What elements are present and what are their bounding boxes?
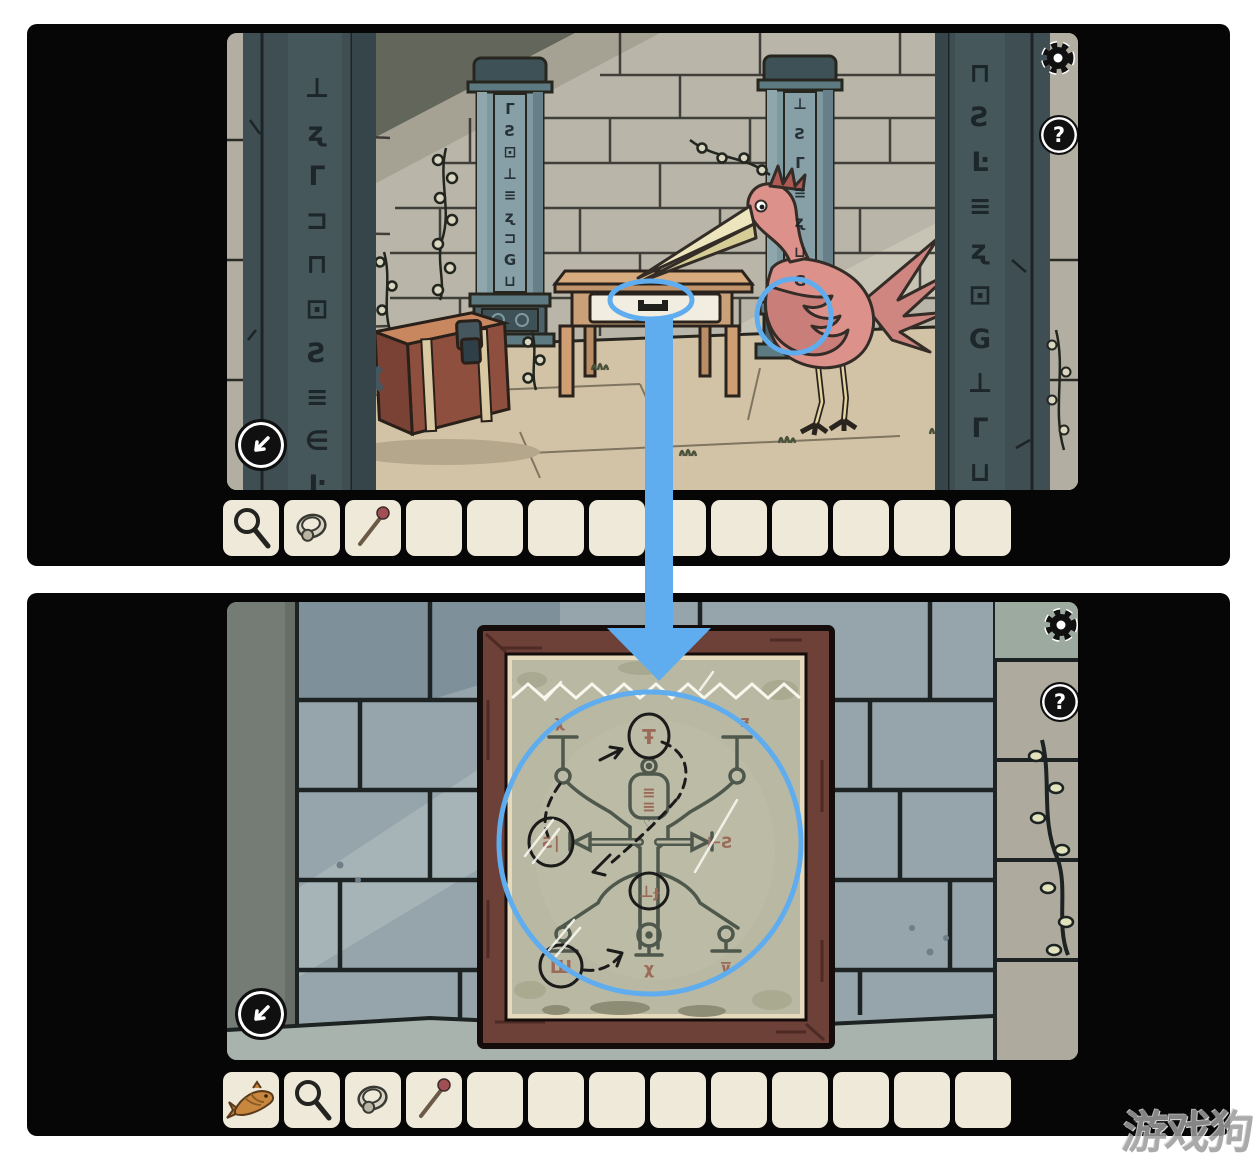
inventory-slot-match[interactable] xyxy=(345,500,401,556)
picture-wall-illustration: χ ƶ Ŧ ≡ ≡ ♡ Ƨ| ⊢Ƨ ⊥ɟ Ш χ ⊽ xyxy=(227,602,1078,1060)
inventory-slot-empty[interactable] xyxy=(467,500,523,556)
game-scene-picture[interactable]: χ ƶ Ŧ ≡ ≡ ♡ Ƨ| ⊢Ƨ ⊥ɟ Ш χ ⊽ xyxy=(227,602,1078,1060)
help-button[interactable]: ? xyxy=(1040,682,1078,722)
gear-icon xyxy=(1037,37,1078,79)
inventory-slot-empty[interactable] xyxy=(833,500,889,556)
ring-icon xyxy=(284,500,340,556)
inventory-slot-empty[interactable] xyxy=(711,1072,767,1128)
inventory-slot-empty[interactable] xyxy=(406,500,462,556)
svg-text:≡: ≡ xyxy=(642,797,655,816)
inventory-slot-empty[interactable] xyxy=(589,1072,645,1128)
inventory-slot-empty[interactable] xyxy=(894,1072,950,1128)
inventory-slot-empty[interactable] xyxy=(467,1072,523,1128)
settings-button[interactable] xyxy=(1040,604,1078,646)
inventory-slot-empty[interactable] xyxy=(955,1072,1011,1128)
inventory-slot-magnifier[interactable] xyxy=(223,500,279,556)
gear-icon xyxy=(1040,604,1078,646)
inventory-slot-empty[interactable] xyxy=(772,500,828,556)
match-icon xyxy=(345,500,401,556)
svg-text:χ: χ xyxy=(555,712,565,731)
arrow-down-left-icon xyxy=(249,433,273,457)
magnifying-glass-icon xyxy=(223,500,279,556)
wooden-chest[interactable] xyxy=(372,311,510,436)
screenshot-panel-top: ⊥ʐΓ⊐⊓⊡Ƨ≡∈Ŀ ⊓ƧĿ≡ʐ⊡G⊥Γ⊔ ΓƧ⊡⊥≡ʐ⊐G⊔ ⊥ƧΓ≡ʐ⊔G xyxy=(27,24,1230,566)
inventory-slot-ring[interactable] xyxy=(345,1072,401,1128)
svg-text:Ŧ: Ŧ xyxy=(642,725,656,749)
inventory-bar xyxy=(223,500,1011,556)
inventory-slot-empty[interactable] xyxy=(772,1072,828,1128)
walkthrough-page: ⊥ʐΓ⊐⊓⊡Ƨ≡∈Ŀ ⊓ƧĿ≡ʐ⊡G⊥Γ⊔ ΓƧ⊡⊥≡ʐ⊐G⊔ ⊥ƧΓ≡ʐ⊔G xyxy=(0,0,1256,1161)
game-scene-room[interactable]: ⊥ʐΓ⊐⊓⊡Ƨ≡∈Ŀ ⊓ƧĿ≡ʐ⊡G⊥Γ⊔ ΓƧ⊡⊥≡ʐ⊐G⊔ ⊥ƧΓ≡ʐ⊔G xyxy=(227,33,1078,490)
magnifying-glass-icon xyxy=(284,1072,340,1128)
inventory-slot-empty[interactable] xyxy=(833,1072,889,1128)
inventory-slot-empty[interactable] xyxy=(650,500,706,556)
inventory-bar xyxy=(223,1072,1011,1128)
back-button[interactable] xyxy=(235,419,287,471)
room-illustration xyxy=(227,33,1078,490)
ring-icon xyxy=(345,1072,401,1128)
arrow-down-left-icon xyxy=(249,1002,273,1026)
inventory-slot-empty[interactable] xyxy=(955,500,1011,556)
svg-text:⊥ɟ: ⊥ɟ xyxy=(639,882,660,901)
svg-text:χ: χ xyxy=(644,959,654,978)
help-label: ? xyxy=(1053,123,1065,147)
svg-text:ƶ: ƶ xyxy=(740,712,749,731)
help-label: ? xyxy=(1054,690,1066,714)
inventory-slot-empty[interactable] xyxy=(528,500,584,556)
svg-text:Ш: Ш xyxy=(550,957,572,978)
inventory-slot-empty[interactable] xyxy=(650,1072,706,1128)
inventory-slot-empty[interactable] xyxy=(894,500,950,556)
inventory-slot-fish[interactable] xyxy=(223,1072,279,1128)
inventory-slot-empty[interactable] xyxy=(528,1072,584,1128)
match-icon xyxy=(406,1072,462,1128)
settings-button[interactable] xyxy=(1037,37,1078,79)
back-button[interactable] xyxy=(235,988,287,1040)
watermark-logo: 游戏狗 xyxy=(1120,1096,1256,1161)
svg-text:Ƨ|: Ƨ| xyxy=(542,833,559,853)
help-button[interactable]: ? xyxy=(1039,115,1078,155)
inventory-slot-empty[interactable] xyxy=(711,500,767,556)
inventory-slot-ring[interactable] xyxy=(284,500,340,556)
chest-lock[interactable] xyxy=(461,338,480,363)
inventory-slot-magnifier[interactable] xyxy=(284,1072,340,1128)
dried-fish-icon xyxy=(223,1072,279,1128)
inventory-slot-match[interactable] xyxy=(406,1072,462,1128)
svg-text:⊽: ⊽ xyxy=(720,959,733,978)
screenshot-panel-bottom: χ ƶ Ŧ ≡ ≡ ♡ Ƨ| ⊢Ƨ ⊥ɟ Ш χ ⊽ xyxy=(27,593,1230,1136)
rune-column-left[interactable] xyxy=(466,58,554,346)
framed-diagram[interactable]: χ ƶ Ŧ ≡ ≡ ♡ Ƨ| ⊢Ƨ ⊥ɟ Ш χ ⊽ xyxy=(480,628,832,1046)
inventory-slot-empty[interactable] xyxy=(589,500,645,556)
